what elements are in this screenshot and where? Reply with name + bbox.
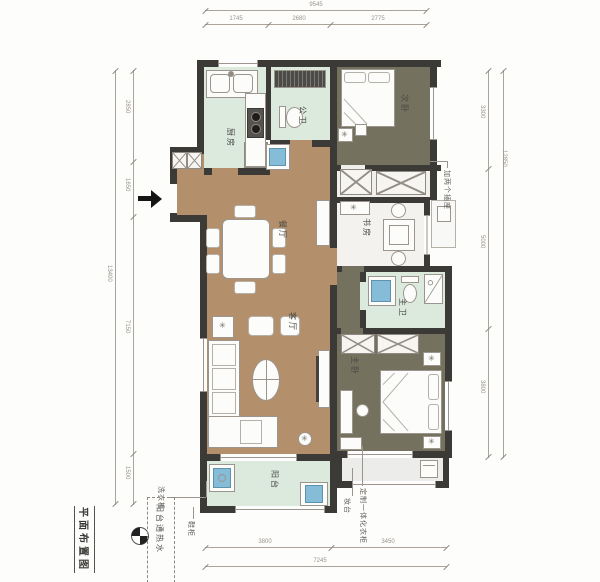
master-wardrobe-hatch — [341, 334, 375, 354]
entry-door-opening — [170, 184, 177, 213]
wall-mid-top — [330, 60, 337, 175]
room-label-public-bath: 公卫 — [297, 106, 308, 126]
plant-icon: ✳ — [301, 435, 308, 443]
dimension-tick — [202, 545, 208, 551]
wall-kitchen-bath-divider — [266, 67, 271, 140]
room-label-balcony: 阳台 — [269, 470, 280, 490]
pillow — [344, 72, 366, 83]
master-window — [445, 381, 452, 431]
study-chair — [391, 251, 406, 266]
entry-shaft — [172, 152, 187, 169]
note-balcony-hot-water: 阳台通热水 — [154, 504, 165, 554]
plant-icon: ✳ — [428, 355, 435, 363]
floor-plan-canvas: ✳ ✳ ✳ ✳ ✳ ✳ — [0, 0, 600, 582]
ac-unit-line — [423, 465, 435, 466]
leader-line — [193, 507, 194, 519]
dimension-tick — [423, 8, 429, 14]
dimension-tick — [327, 22, 333, 28]
dimension-tick — [485, 454, 491, 460]
page-title: 平面布置图 — [74, 506, 95, 573]
dimension-value: 12850 — [501, 150, 507, 167]
living-window — [200, 338, 207, 392]
shower-stall — [424, 274, 443, 304]
hall-wardrobe-hatch — [340, 169, 372, 195]
second-bedroom-window — [430, 87, 437, 140]
sofa-cushion — [212, 392, 236, 414]
dimension-line — [503, 70, 504, 458]
note-dresser: 妆台 — [342, 498, 352, 514]
coffee-table-line — [266, 360, 267, 400]
toilet-tank — [279, 106, 286, 128]
dimension-line — [133, 70, 134, 505]
tv-stand — [318, 350, 330, 408]
dimension-value: 3300 — [479, 105, 485, 118]
dimension-tick — [130, 501, 136, 507]
stool — [356, 404, 369, 417]
plant-icon: ✳ — [428, 438, 435, 446]
study-chair — [391, 203, 406, 218]
entry-shaft — [187, 152, 202, 169]
stove-burner — [251, 124, 261, 134]
dimension-tick — [112, 501, 118, 507]
dimension-value: 3800 — [479, 380, 485, 393]
room-label-master-bedroom: 主卧 — [349, 356, 360, 376]
dimension-tick — [443, 564, 449, 570]
leader-line — [362, 446, 363, 486]
note-shoe-cabinet: 鞋柜 — [186, 521, 196, 537]
sideboard — [316, 200, 330, 246]
dimension-tick — [328, 545, 334, 551]
toilet-tank — [401, 276, 419, 283]
sofa-cushion — [240, 420, 262, 444]
leader-line — [430, 161, 448, 162]
wall-kitchen-left — [197, 60, 204, 154]
dimension-tick — [202, 8, 208, 14]
study-table-inner — [389, 225, 409, 245]
living-corridor-opening — [330, 248, 337, 285]
dimension-tick — [423, 22, 429, 28]
room-label-dining: 餐厅 — [277, 220, 288, 240]
plant-icon: ✳ — [219, 322, 226, 330]
room-label-master-bath: 主卫 — [397, 298, 408, 318]
dimension-value: 7245 — [290, 558, 350, 564]
plant-icon: ✳ — [341, 131, 348, 139]
tv — [316, 356, 319, 402]
dimension-tick — [265, 22, 271, 28]
dimension-line — [488, 70, 489, 458]
room-label-study: 书房 — [361, 218, 372, 238]
public-bath-door-opening — [290, 140, 312, 147]
dimension-value: 3800 — [235, 539, 295, 545]
kitchen-window — [218, 60, 258, 67]
room-label-second-bedroom: 次卧 — [399, 94, 410, 114]
leader-line — [447, 161, 448, 168]
dimension-line — [205, 10, 427, 11]
vanity-sink — [371, 280, 391, 302]
armchair — [248, 316, 274, 336]
dimension-tick — [202, 564, 208, 570]
dimension-value: 7150 — [124, 320, 130, 333]
dimension-line — [115, 70, 116, 505]
dressing-table — [340, 390, 353, 434]
note-sockets: 加两个插座 — [442, 170, 452, 210]
study-window — [424, 215, 430, 255]
dining-chair — [272, 254, 286, 274]
wall-rear-balcony-right — [443, 458, 449, 488]
wash-basin — [269, 148, 286, 166]
dining-chair — [206, 228, 220, 248]
kitchen-sink-bowl — [210, 74, 230, 93]
master-bath-door-opening — [360, 282, 366, 310]
kitchen-sink-bowl — [233, 74, 253, 93]
dining-table — [222, 219, 270, 279]
note-wardrobe: 定制一体化衣柜 — [358, 488, 368, 544]
dimension-tick — [202, 22, 208, 28]
dining-chair — [234, 281, 256, 294]
room-label-living: 客厅 — [287, 312, 298, 332]
wall-balcony-right — [330, 454, 337, 513]
master-wardrobe-hatch — [377, 334, 419, 354]
plant-icon: ✳ — [350, 204, 357, 212]
dimension-value: 1500 — [124, 466, 130, 479]
dining-chair — [234, 205, 256, 218]
dimension-line — [205, 547, 447, 548]
ac-unit — [420, 460, 438, 478]
dimension-line — [205, 566, 447, 567]
rear-balcony-window — [352, 481, 436, 488]
pillow — [428, 374, 439, 400]
hall-wardrobe-hatch — [376, 171, 426, 195]
dimension-value: 1745 — [206, 16, 266, 22]
wall-rear-balcony-left — [337, 458, 342, 488]
dresser — [355, 124, 367, 136]
dimension-tick — [443, 545, 449, 551]
wall-living-right — [330, 175, 337, 458]
master-balcony-slider — [347, 451, 413, 458]
dimension-value: 5000 — [479, 235, 485, 248]
sofa-cushion — [212, 344, 236, 366]
entrance-arrow-tip — [151, 190, 162, 208]
dimension-value: 2680 — [269, 16, 329, 22]
sofa-cushion — [212, 368, 236, 390]
leader-line — [352, 468, 353, 496]
dimension-value: 1650 — [124, 178, 130, 191]
kitchen-faucet — [228, 71, 234, 77]
dimension-value: 3450 — [358, 539, 418, 545]
entrance-arrow-icon — [138, 196, 151, 201]
balcony-sink — [305, 485, 323, 503]
kitchen-door-opening — [212, 168, 238, 175]
pillow — [428, 404, 439, 430]
washing-machine-door — [218, 474, 226, 482]
room-label-kitchen: 厨房 — [225, 128, 236, 148]
side-table — [340, 437, 362, 450]
living-balcony-slider — [220, 454, 297, 461]
dimension-value: 2850 — [124, 100, 130, 113]
dining-chair — [206, 254, 220, 274]
balcony-window — [235, 506, 325, 513]
leader-line — [206, 481, 207, 497]
dimension-value: 2775 — [348, 16, 408, 22]
dimension-value: 13400 — [106, 265, 112, 282]
dimension-tick — [500, 454, 506, 460]
dimension-line — [205, 24, 427, 25]
dimension-value: 9545 — [286, 2, 346, 8]
stove-burner — [251, 112, 261, 122]
bath-vent-grille — [274, 70, 326, 88]
pillow — [368, 72, 390, 83]
